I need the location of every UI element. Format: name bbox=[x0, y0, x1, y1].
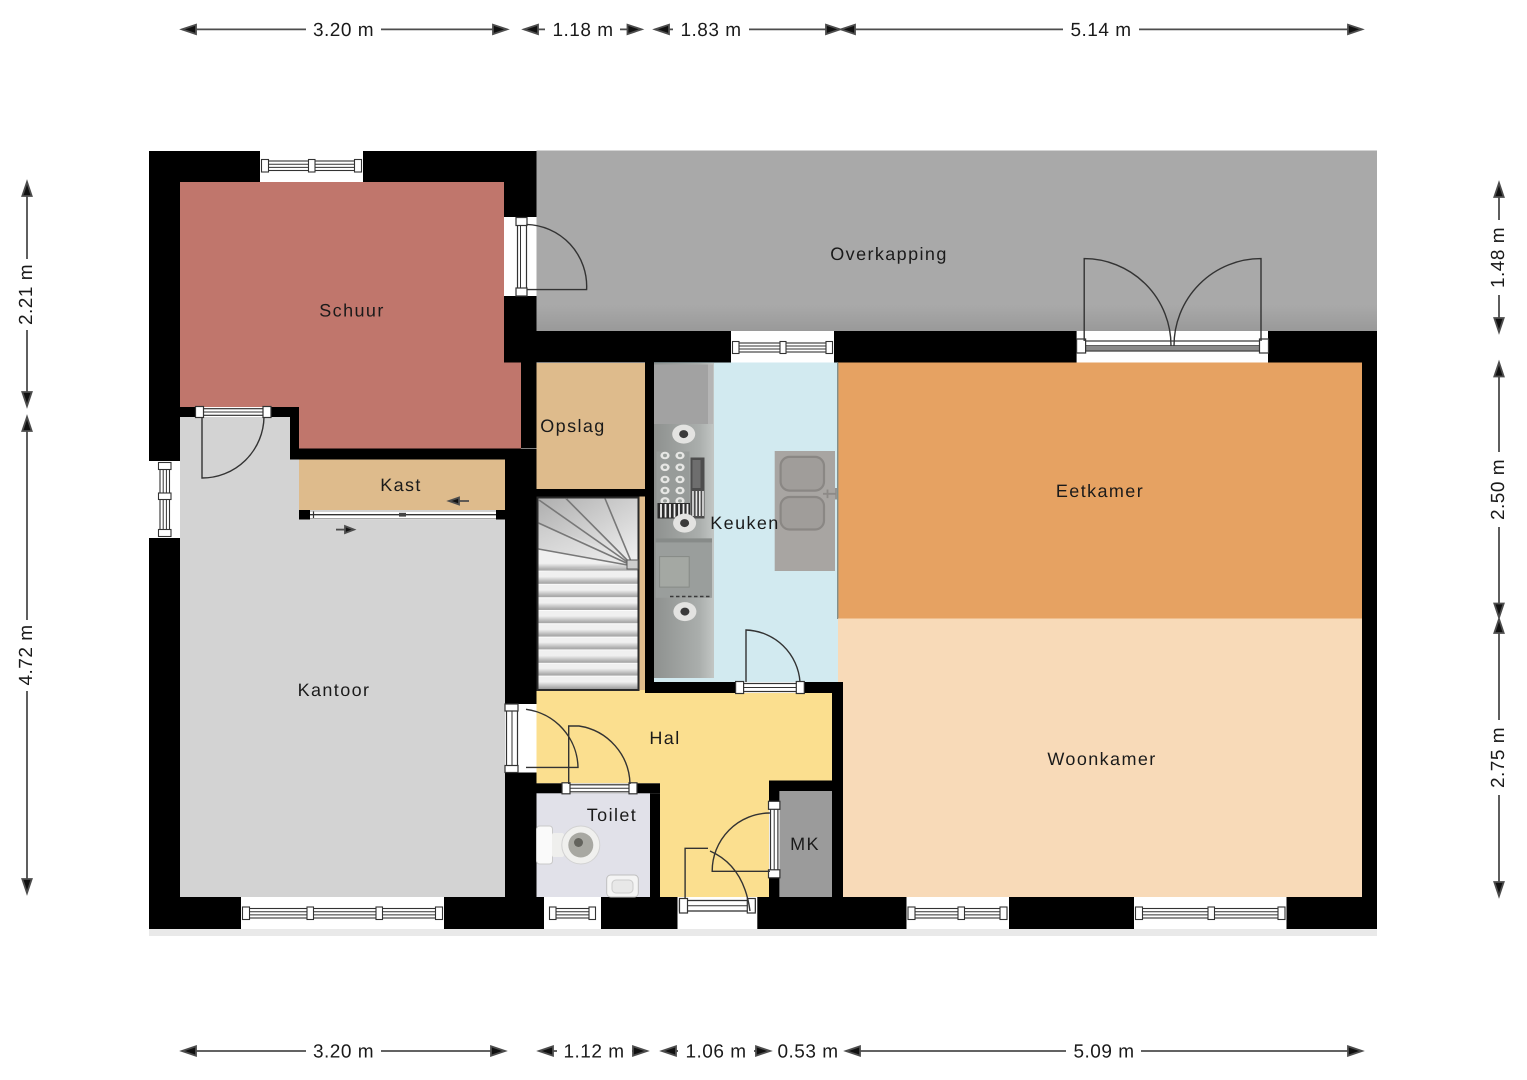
svg-text:1.83 m: 1.83 m bbox=[680, 20, 741, 41]
svg-text:4.72 m: 4.72 m bbox=[16, 624, 37, 685]
svg-text:Keuken: Keuken bbox=[710, 513, 779, 533]
svg-text:5.14 m: 5.14 m bbox=[1070, 20, 1131, 41]
svg-text:MK: MK bbox=[790, 834, 820, 854]
svg-text:Kast: Kast bbox=[380, 475, 422, 495]
svg-text:2.21 m: 2.21 m bbox=[16, 264, 37, 325]
svg-text:Kantoor: Kantoor bbox=[298, 680, 371, 700]
svg-text:Overkapping: Overkapping bbox=[830, 244, 947, 264]
svg-text:2.50 m: 2.50 m bbox=[1488, 459, 1509, 520]
svg-text:1.06 m: 1.06 m bbox=[685, 1042, 746, 1063]
svg-text:Toilet: Toilet bbox=[587, 805, 637, 825]
svg-text:0.53 m: 0.53 m bbox=[777, 1042, 838, 1063]
svg-text:Woonkamer: Woonkamer bbox=[1047, 749, 1156, 769]
svg-text:5.09 m: 5.09 m bbox=[1073, 1042, 1134, 1063]
svg-text:2.75 m: 2.75 m bbox=[1488, 727, 1509, 788]
svg-text:3.20 m: 3.20 m bbox=[313, 1042, 374, 1063]
svg-text:Hal: Hal bbox=[649, 728, 680, 748]
svg-text:Schuur: Schuur bbox=[319, 301, 384, 321]
svg-text:Opslag: Opslag bbox=[540, 416, 605, 436]
svg-text:1.18 m: 1.18 m bbox=[552, 20, 613, 41]
svg-text:1.48 m: 1.48 m bbox=[1488, 227, 1509, 288]
svg-text:3.20 m: 3.20 m bbox=[313, 20, 374, 41]
svg-text:1.12 m: 1.12 m bbox=[563, 1042, 624, 1063]
svg-text:Eetkamer: Eetkamer bbox=[1056, 481, 1144, 501]
